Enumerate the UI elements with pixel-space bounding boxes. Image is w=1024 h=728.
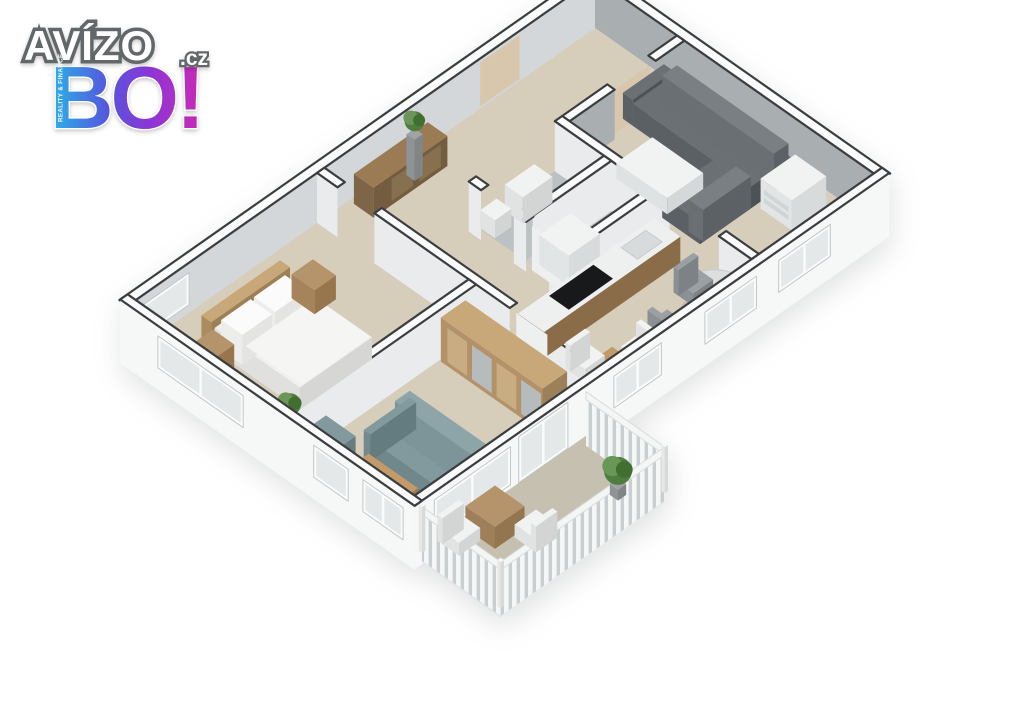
potted-plant xyxy=(403,111,425,181)
floor-plan-image: BO! AVÍZO .cz REALITY & FINANCE xyxy=(0,0,1024,728)
avizo-logo: BO! AVÍZO .cz REALITY & FINANCE xyxy=(14,8,314,158)
logo-wordmark: AVÍZO .cz xyxy=(24,22,208,70)
logo-title-text: AVÍZO xyxy=(24,22,154,69)
logo-tld-text: .cz xyxy=(180,47,208,70)
logo-tagline-text: REALITY & FINANCE xyxy=(58,53,65,122)
